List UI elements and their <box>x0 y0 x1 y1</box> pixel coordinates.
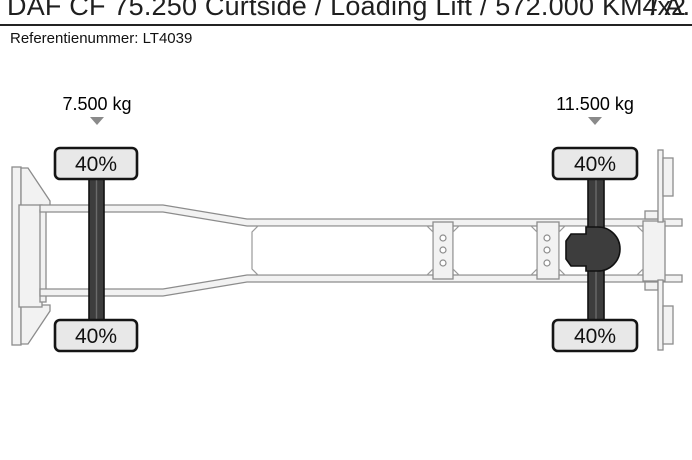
frame-panel-rear-1 <box>453 226 537 275</box>
front-bumper <box>12 167 50 345</box>
frame-rail-left <box>40 205 682 226</box>
rear-axle <box>566 170 620 332</box>
frame-panel-mid <box>252 226 433 275</box>
listing-screenshot: DAF CF 75.250 Curtside / Loading Lift / … <box>0 0 692 460</box>
rear-axle-marker-icon <box>588 117 602 125</box>
tire-rear-right: 40% <box>553 320 637 351</box>
differential-housing <box>566 227 620 271</box>
frame-rail-right <box>40 275 682 296</box>
chassis-diagram: 40% 40% 40% 40% 7.500 kg 11.500 kg <box>0 0 692 460</box>
bolt-holes-crossmember-2 <box>544 235 550 266</box>
tire-front-left-pct: 40% <box>75 153 117 176</box>
tire-front-left: 40% <box>55 148 137 179</box>
tire-rear-left: 40% <box>553 148 637 179</box>
rear-crossmember <box>643 221 665 281</box>
tire-front-right-pct: 40% <box>75 325 117 348</box>
front-axle <box>89 170 104 332</box>
tire-rear-left-pct: 40% <box>574 153 616 176</box>
rear-bracket-right <box>663 306 673 344</box>
rear-axle-load: 11.500 kg <box>556 94 634 114</box>
front-axle-load: 7.500 kg <box>62 94 131 114</box>
rear-bracket-left <box>663 158 673 196</box>
tire-rear-right-pct: 40% <box>574 325 616 348</box>
front-axle-marker-icon <box>90 117 104 125</box>
bolt-holes-crossmember-1 <box>440 235 446 266</box>
tire-front-right: 40% <box>55 320 137 351</box>
